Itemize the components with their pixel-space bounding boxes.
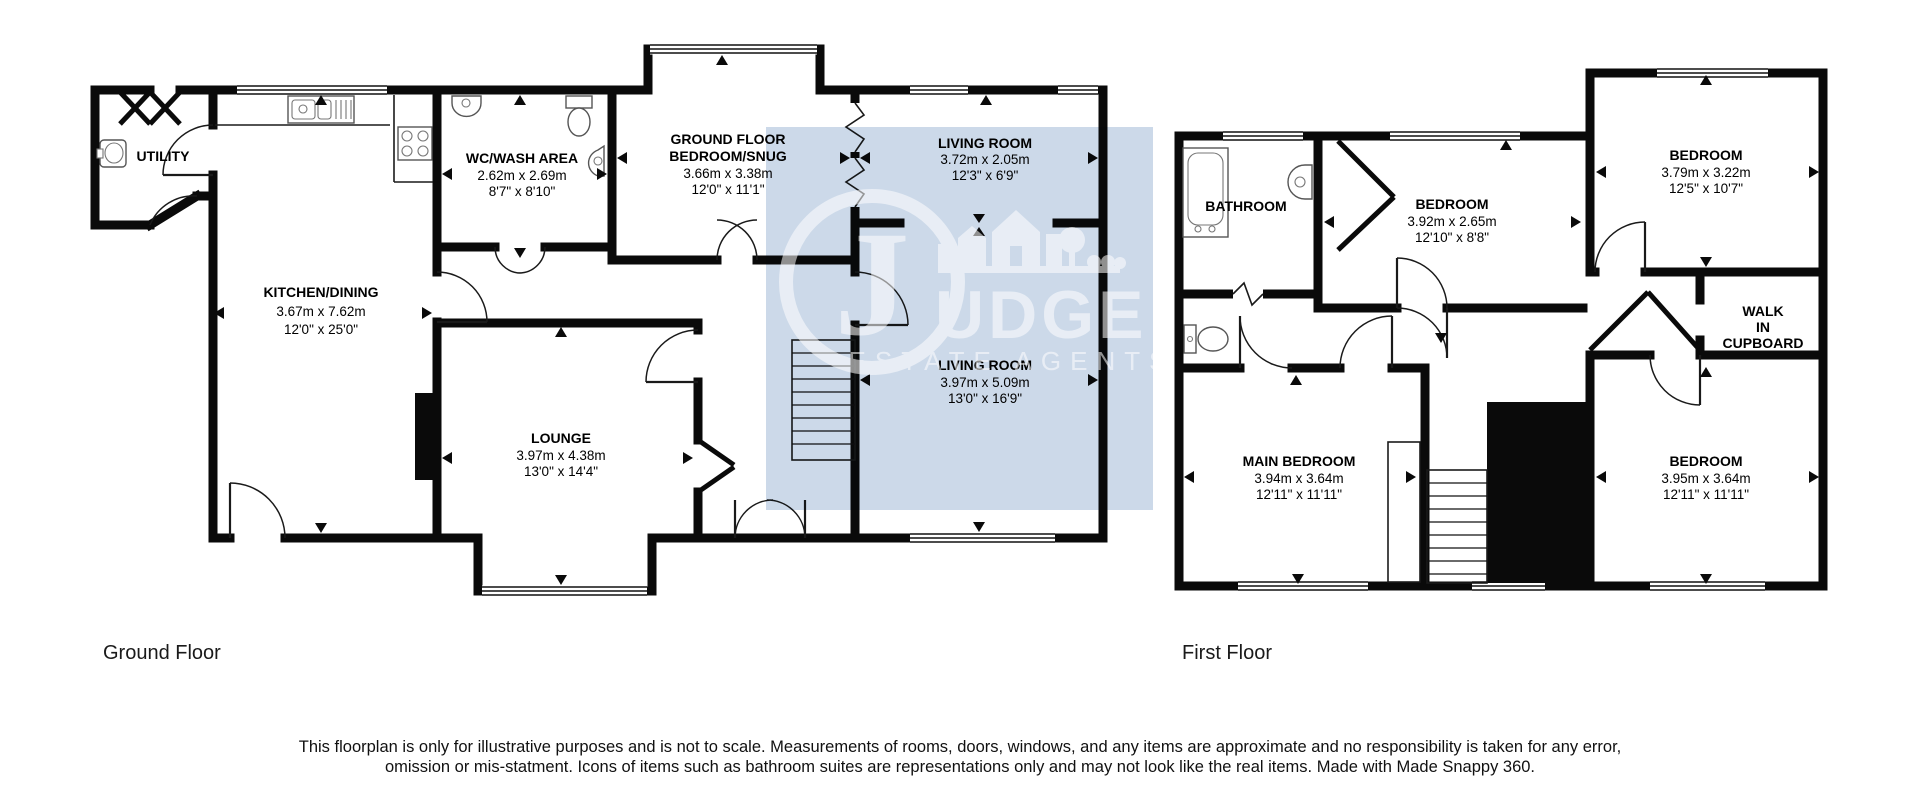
wc-sink-icon	[452, 96, 481, 116]
room-dim-metric: 2.62m x 2.69m	[477, 168, 566, 183]
wc-toilet-icon	[566, 96, 592, 136]
floorplan-page: UTILITY KITCHEN/DINING 3.67m x 7.62m 12'…	[0, 0, 1920, 807]
room-dim-imperial: 12'5" x 10'7"	[1669, 181, 1743, 196]
floor-plan-svg: UTILITY KITCHEN/DINING 3.67m x 7.62m 12'…	[0, 0, 1920, 807]
cupboard-door	[1590, 292, 1698, 350]
room-dim-imperial: 8'7" x 8'10"	[489, 184, 556, 199]
room-dim-metric: 3.94m x 3.64m	[1254, 471, 1343, 486]
logo-initial: J	[835, 201, 910, 367]
ff-fixtures	[1183, 148, 1312, 353]
watermark: J UDGE ESTATE AGENTS	[766, 127, 1175, 510]
ff-stairs	[1427, 470, 1487, 583]
toilet-icon	[1184, 325, 1228, 353]
room-label: BEDROOM	[1669, 147, 1742, 163]
room-dim-metric: 3.67m x 7.62m	[276, 304, 365, 319]
room-label: BEDROOM	[1415, 196, 1488, 212]
room-label: LOUNGE	[531, 430, 591, 446]
room-dim-imperial: 12'0" x 25'0"	[284, 322, 358, 337]
disclaimer-text: This floorplan is only for illustrative …	[280, 738, 1640, 777]
room-bedroom-bottom-right: BEDROOM 3.95m x 3.64m 12'11" x 11'11"	[1661, 453, 1750, 502]
room-dim-imperial: 12'0" x 11'1"	[691, 182, 764, 197]
gf-chimney	[415, 393, 437, 480]
room-dim-imperial: 12'11" x 11'11"	[1663, 487, 1749, 502]
room-bedroom-top-right: BEDROOM 3.79m x 3.22m 12'5" x 10'7"	[1661, 147, 1750, 196]
room-kitchen-dining: KITCHEN/DINING 3.67m x 7.62m 12'0" x 25'…	[263, 284, 378, 337]
room-label: KITCHEN/DINING	[263, 284, 378, 300]
room-dim-metric: 3.92m x 2.65m	[1407, 214, 1496, 229]
logo-tagline: ESTATE AGENTS	[849, 346, 1176, 376]
room-bathroom: BATHROOM	[1205, 198, 1286, 214]
room-label: BEDROOM	[1669, 453, 1742, 469]
lounge-diagonal-doors	[698, 440, 734, 492]
room-bedroom-mid: BEDROOM 3.92m x 2.65m 12'10" x 8'8"	[1407, 196, 1496, 245]
room-label: BATHROOM	[1205, 198, 1286, 214]
room-label: UTILITY	[137, 148, 191, 164]
room-dim-metric: 3.79m x 3.22m	[1661, 165, 1750, 180]
room-lounge: LOUNGE 3.97m x 4.38m 13'0" x 14'4"	[516, 430, 605, 479]
utility-double-door	[120, 92, 180, 124]
first-floor-label: First Floor	[1182, 642, 1272, 664]
room-label: CUPBOARD	[1723, 335, 1804, 351]
first-floor-plan: BATHROOM BEDROOM 3.92m x 2.65m 12'10" x …	[1179, 68, 1823, 592]
room-dim-imperial: 12'10" x 8'8"	[1415, 230, 1489, 245]
room-label: WC/WASH AREA	[466, 150, 578, 166]
utility-sink-icon	[97, 140, 126, 167]
room-dim-metric: 3.95m x 3.64m	[1661, 471, 1750, 486]
room-dim-metric: 3.66m x 3.38m	[683, 166, 772, 181]
ground-floor-label: Ground Floor	[103, 642, 221, 664]
room-dim-imperial: 13'0" x 14'4"	[524, 464, 598, 479]
room-label: WALK	[1742, 303, 1783, 319]
bath-icon	[1183, 148, 1228, 237]
logo-brand-rest: UDGE	[935, 277, 1147, 353]
room-label: IN	[1756, 319, 1770, 335]
room-main-bedroom: MAIN BEDROOM 3.94m x 3.64m 12'11" x 11'1…	[1243, 453, 1356, 502]
ff-chimney	[1487, 402, 1587, 583]
room-walk-in-cupboard: WALK IN CUPBOARD	[1723, 303, 1804, 351]
bathroom-sink-icon	[1288, 165, 1312, 199]
hob-icon	[398, 127, 432, 160]
room-label: MAIN BEDROOM	[1243, 453, 1356, 469]
room-dim-metric: 3.97m x 4.38m	[516, 448, 605, 463]
room-wc-wash-area: WC/WASH AREA 2.62m x 2.69m 8'7" x 8'10"	[466, 150, 578, 199]
ff-wardrobe	[1388, 442, 1420, 582]
room-utility: UTILITY	[137, 148, 191, 164]
room-dim-imperial: 12'11" x 11'11"	[1256, 487, 1342, 502]
bedroom-mid-corner-door	[1338, 141, 1394, 250]
